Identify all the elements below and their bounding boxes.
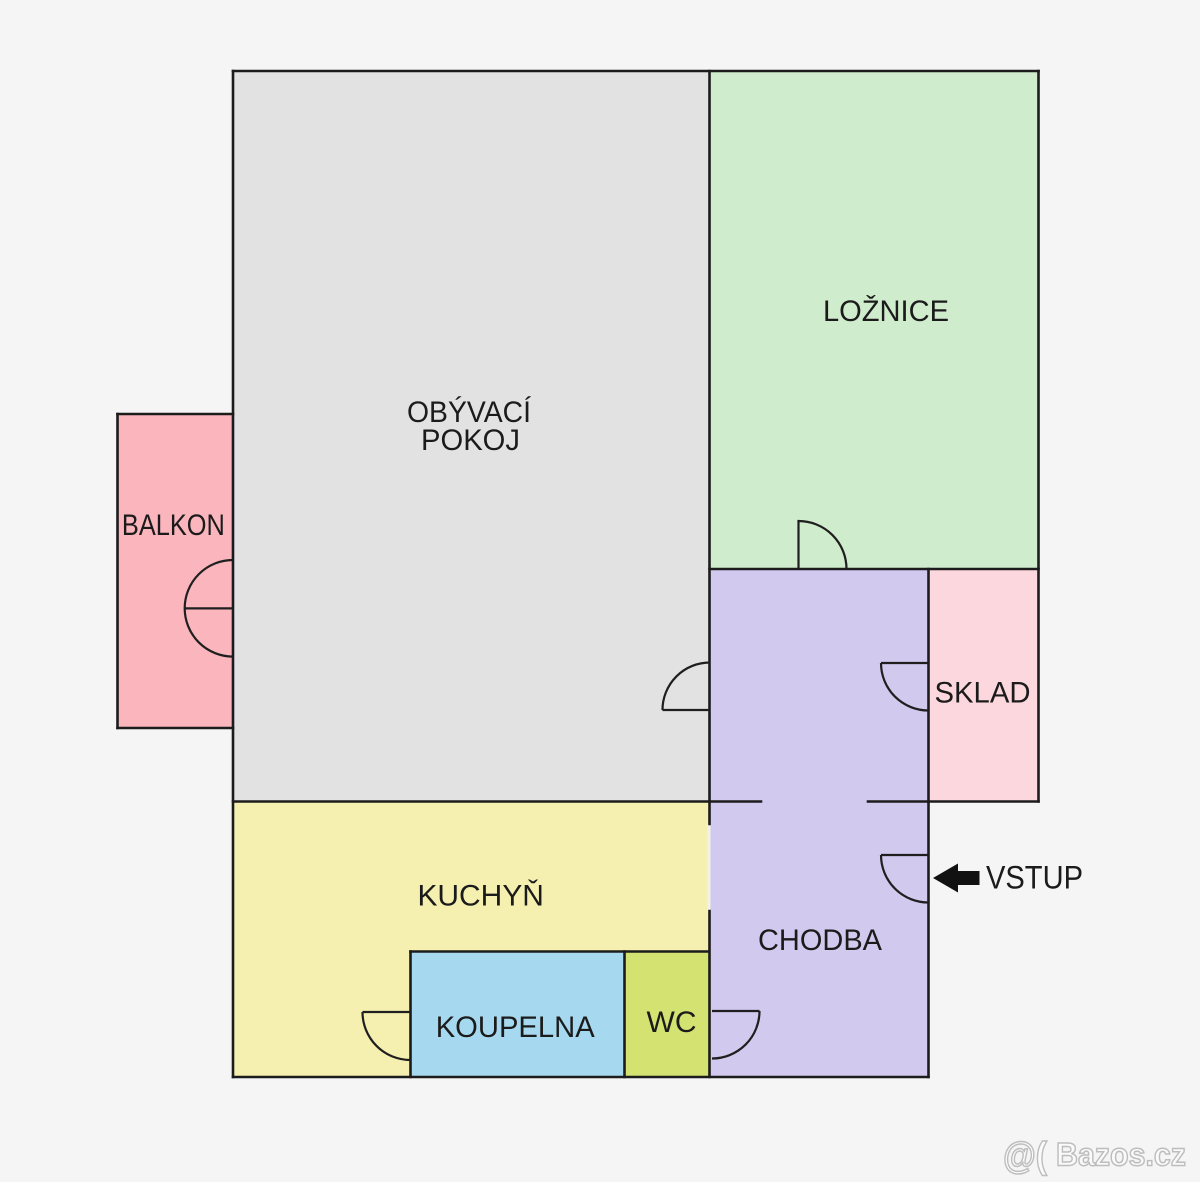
svg-text:KOUPELNA: KOUPELNA xyxy=(436,1011,595,1044)
svg-text:BALKON: BALKON xyxy=(122,509,225,542)
svg-text:LOŽNICE: LOŽNICE xyxy=(823,295,949,328)
svg-text:WC: WC xyxy=(647,1006,697,1039)
svg-text:Bazos.cz: Bazos.cz xyxy=(1056,1137,1186,1173)
svg-text:@(: @( xyxy=(1003,1135,1048,1176)
svg-text:VSTUP: VSTUP xyxy=(986,860,1083,896)
svg-text:KUCHYŇ: KUCHYŇ xyxy=(417,880,544,913)
svg-text:POKOJ: POKOJ xyxy=(421,424,520,457)
svg-text:SKLAD: SKLAD xyxy=(935,677,1031,710)
svg-text:CHODBA: CHODBA xyxy=(758,924,882,957)
